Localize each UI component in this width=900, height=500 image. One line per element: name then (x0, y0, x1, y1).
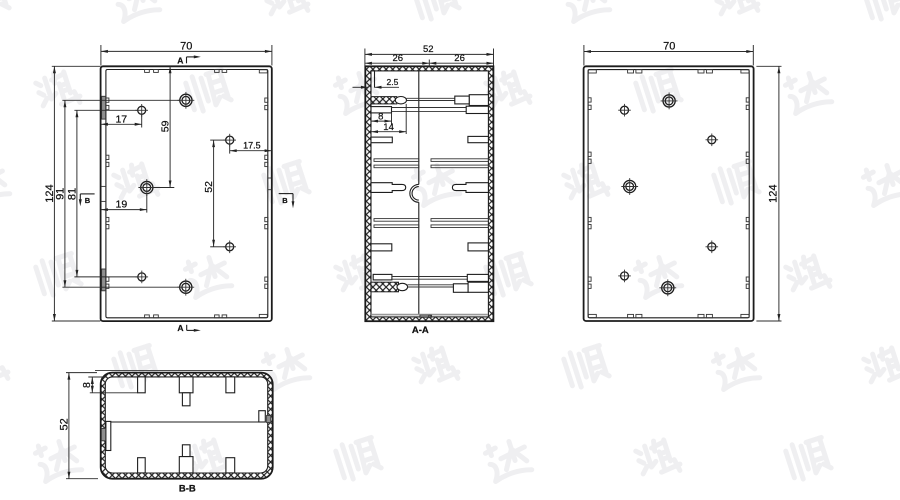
svg-text:B: B (282, 196, 288, 205)
svg-text:91: 91 (55, 188, 67, 200)
svg-text:B: B (85, 196, 91, 205)
svg-text:A-A: A-A (412, 325, 429, 336)
svg-text:124: 124 (768, 185, 780, 203)
svg-text:8: 8 (378, 112, 383, 123)
svg-text:B-B: B-B (179, 483, 196, 494)
svg-text:59: 59 (159, 120, 171, 132)
svg-text:52: 52 (203, 181, 215, 193)
svg-text:81: 81 (67, 188, 79, 200)
svg-text:A: A (177, 55, 183, 65)
svg-text:52: 52 (423, 44, 434, 55)
svg-text:26: 26 (393, 53, 404, 64)
svg-text:17: 17 (115, 113, 127, 125)
svg-text:70: 70 (180, 40, 192, 52)
svg-text:2.5: 2.5 (386, 77, 398, 87)
svg-text:8: 8 (81, 382, 93, 388)
svg-text:26: 26 (454, 53, 465, 64)
svg-text:70: 70 (663, 40, 675, 52)
svg-text:19: 19 (116, 199, 128, 211)
svg-text:A: A (177, 323, 183, 333)
svg-text:52: 52 (58, 418, 70, 430)
svg-text:17.5: 17.5 (243, 140, 261, 150)
svg-text:14: 14 (383, 122, 394, 133)
